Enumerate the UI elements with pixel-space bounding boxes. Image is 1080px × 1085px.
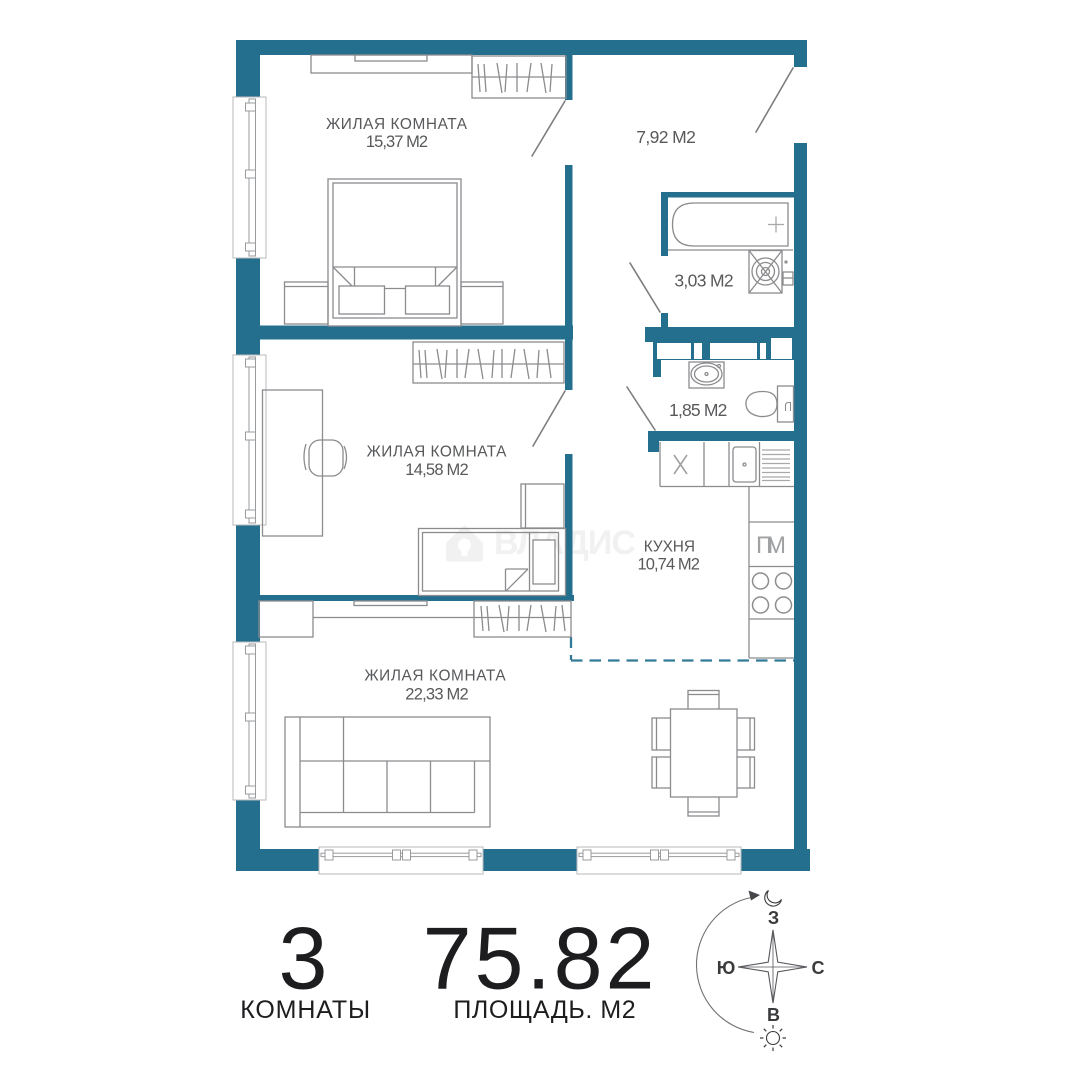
svg-text:75.82: 75.82 xyxy=(423,909,658,1008)
svg-text:1,85 М2: 1,85 М2 xyxy=(669,400,727,420)
svg-text:КОМНАТЫ: КОМНАТЫ xyxy=(240,996,371,1024)
svg-text:3,03 М2: 3,03 М2 xyxy=(674,271,733,291)
svg-text:ЖИЛАЯ КОМНАТА: ЖИЛАЯ КОМНАТА xyxy=(367,443,508,460)
svg-text:С: С xyxy=(812,958,825,978)
svg-text:Ю: Ю xyxy=(717,958,736,978)
svg-text:14,58 М2: 14,58 М2 xyxy=(405,461,468,479)
svg-text:22,33 М2: 22,33 М2 xyxy=(405,686,468,704)
svg-text:ПМ: ПМ xyxy=(756,532,786,559)
svg-text:З: З xyxy=(768,908,779,928)
svg-text:15,37 М2: 15,37 М2 xyxy=(366,133,428,151)
svg-text:ПЛОЩАДЬ. М2: ПЛОЩАДЬ. М2 xyxy=(453,996,636,1024)
svg-text:КУХНЯ: КУХНЯ xyxy=(644,538,695,555)
svg-text:ЖИЛАЯ КОМНАТА: ЖИЛАЯ КОМНАТА xyxy=(364,668,506,685)
svg-text:ЖИЛАЯ КОМНАТА: ЖИЛАЯ КОМНАТА xyxy=(326,116,468,133)
svg-text:7,92 М2: 7,92 М2 xyxy=(636,127,696,147)
svg-text:10,74 М2: 10,74 М2 xyxy=(637,556,700,574)
svg-text:В: В xyxy=(767,1005,780,1025)
svg-text:3: 3 xyxy=(279,909,328,1008)
